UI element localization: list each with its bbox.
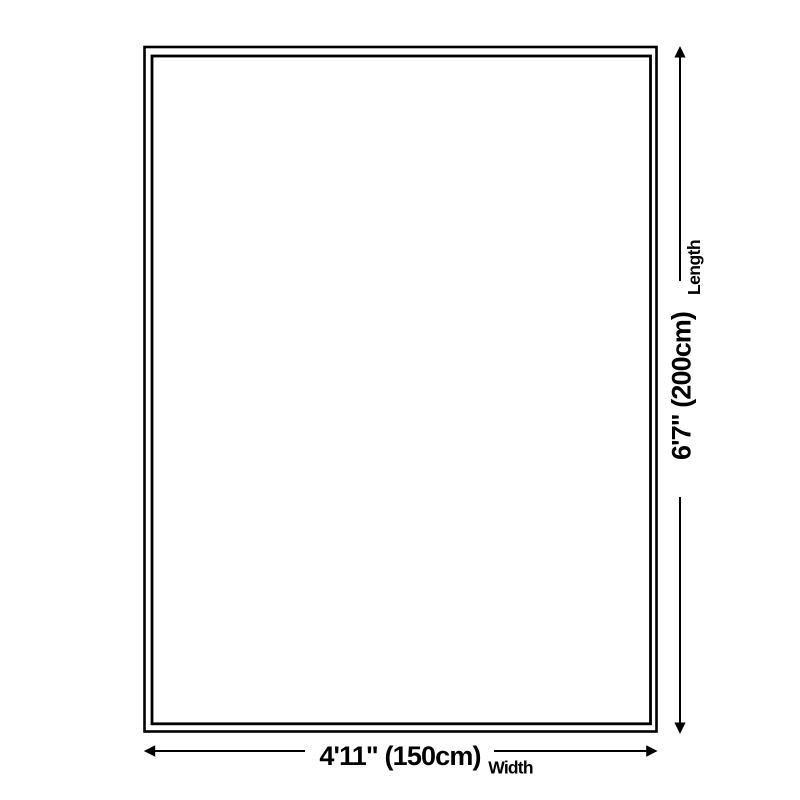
svg-text:Width: Width [488,758,533,778]
svg-text:6'7" (200cm): 6'7" (200cm) [667,312,697,460]
svg-text:Length: Length [684,240,704,295]
svg-text:4'11" (150cm): 4'11" (150cm) [319,741,480,771]
